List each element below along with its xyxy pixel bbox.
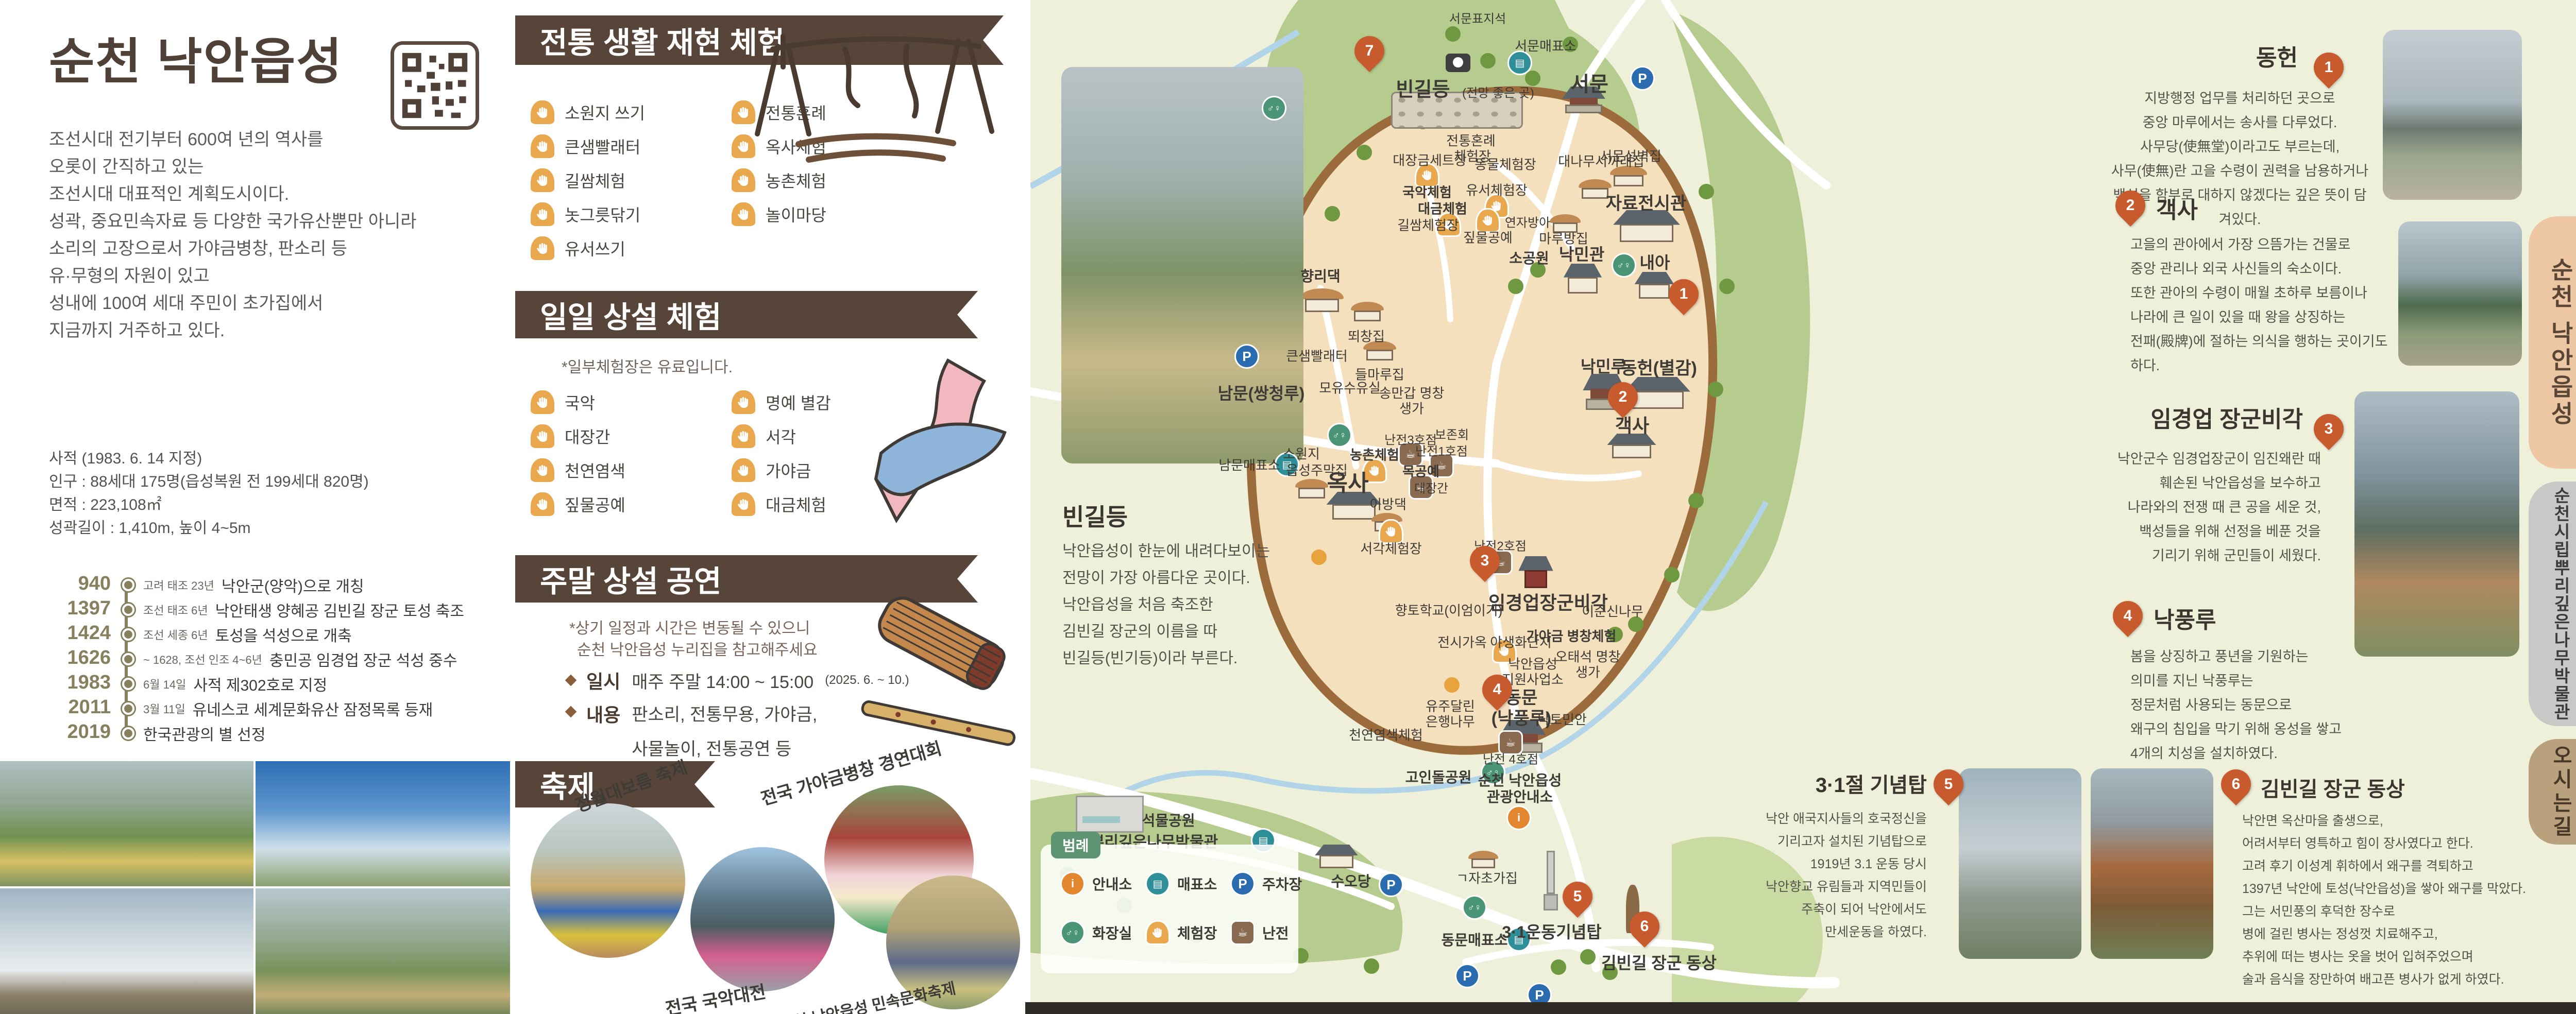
text-line: 낙안 애국지사들의 호국정신을 (1695, 807, 1927, 830)
building-shrine (1521, 556, 1551, 588)
map-label: 서문표지석 (1449, 9, 1506, 27)
parking-icon: P (1230, 871, 1255, 896)
tree-icon (1364, 958, 1379, 974)
timeline-era: 6월 14일 (143, 676, 186, 692)
roof (1295, 479, 1329, 488)
fabric-illustration (819, 340, 1025, 546)
experience-item-label: 가야금 (766, 458, 811, 482)
map-label: 난전1호점 (1415, 441, 1468, 459)
text-line: 주축이 되어 낙안에서도 (1695, 898, 1927, 921)
building-thatch (1353, 302, 1382, 321)
timeline-event: 충민공 임경업 장군 석성 중수 (269, 648, 457, 671)
map-label: 대나무서까래집 (1558, 151, 1644, 170)
legend-item: P주차장 (1230, 871, 1302, 896)
panel-experience: 전통 생활 재현 체험 소원지 쓰기큰샘빨래터길쌈체험놋그릇닦기유서쓰기 전통혼… (510, 0, 1030, 1014)
experience-item: 놋그릇닦기 (531, 202, 645, 226)
body (1612, 444, 1651, 458)
map-label: 자료전시관 (1606, 190, 1686, 215)
experience-item-label: 놋그릇닦기 (565, 202, 640, 226)
legend-item: ☕난전 (1230, 920, 1289, 945)
building-thatch (1470, 851, 1496, 868)
text-line: 만세운동을 하였다. (1695, 921, 1927, 943)
map-label: 큰샘빨래터 (1286, 346, 1348, 365)
tree-icon (1480, 53, 1496, 68)
body (1298, 488, 1325, 499)
brochure-sheet: 순천 낙안읍성 조선시대 전기부터 600여 년의 역사를오롯이 간직하고 있는… (0, 0, 2576, 1014)
experience-item: 천연염색 (531, 458, 625, 482)
map-label: 이방댁 (1369, 494, 1406, 513)
photo-village-spring (0, 761, 253, 886)
experience-item-label: 짚물공예 (565, 492, 625, 516)
timeline-year: 2019 (62, 721, 111, 743)
map-marker-6: 6 (1623, 905, 1666, 948)
timeline-year: 1983 (62, 672, 111, 694)
text-line: 낙안향교 유림들과 지역민들이 (1695, 875, 1927, 898)
map-label: 석물공원 (1142, 810, 1195, 830)
text-line: 인구 : 88세대 175명(읍성복원 전 199세대 820명) (49, 470, 502, 493)
timeline-dot (122, 628, 134, 641)
building-hanok (1566, 264, 1599, 294)
timeline-era: ~ 1628, 조선 인조 4~6년 (143, 651, 262, 667)
experience-icon (531, 492, 554, 516)
experience-icon (531, 424, 554, 448)
poi-pin-3: 3 (2308, 408, 2350, 450)
timeline-dot (122, 678, 134, 690)
timeline-dot (122, 653, 134, 665)
tab-museum: 순천시립뿌리깊은나무박물관 (2529, 482, 2576, 726)
legend-label: 체험장 (1177, 922, 1217, 943)
text-line: 전패(殿牌)에 절하는 의식을 행하는 곳이기도 하다. (2130, 330, 2398, 378)
roof (1351, 302, 1384, 311)
intro-description: 조선시대 전기부터 600여 년의 역사를오롯이 간직하고 있는조선시대 대표적… (49, 126, 502, 345)
poi-text-gaeksa: 고을의 관아에서 가장 으뜸가는 건물로중앙 관리나 외국 사신들의 숙소이다.… (2130, 233, 2398, 378)
drying-rack-illustration (737, 5, 1015, 175)
timeline-event: 낙안태생 양혜공 김빈길 장군 토성 축조 (215, 598, 464, 621)
poi-text-bigak: 낙안군수 임경업장군이 임진왜란 때훼손된 낙안읍성을 보수하고나라와의 전쟁 … (2061, 447, 2321, 568)
ticket-office-icon: ▤ (1145, 871, 1170, 896)
experience-item-label: 대장간 (565, 424, 610, 448)
restroom-icon: ♂♀ (1327, 423, 1352, 448)
text-line: 사무당(使無堂)이라고도 부르는데, (2110, 135, 2370, 159)
roof (1564, 264, 1602, 278)
tree-icon (1325, 206, 1340, 221)
text-line: 의미를 지닌 낙풍루는 (2130, 669, 2398, 693)
ginkgo-tree-icon (1311, 549, 1327, 565)
experience-item: 유서쓰기 (531, 236, 645, 260)
map-label: 남문매표소 (1218, 455, 1280, 474)
text-line: 나라와의 전쟁 때 큰 공을 세운 것, (2061, 495, 2321, 520)
map-label: 고인돌공원 (1405, 766, 1472, 787)
parking-icon: P (1630, 66, 1655, 91)
poi-text-samil: 낙안 애국지사들의 호국정신을기리고자 설치된 기념탑으로1919년 3.1 운… (1695, 807, 1927, 943)
map-label: 뙤창집 (1348, 326, 1385, 346)
experience-icon (732, 424, 755, 448)
map-marker-5: 5 (1556, 875, 1599, 918)
map-label: 난전 4호점 (1483, 749, 1538, 767)
gate-mid (1570, 98, 1598, 106)
body (1620, 224, 1673, 242)
timeline-entry: 한국관광의 별 선정 (143, 721, 265, 746)
tree-icon (1508, 279, 1523, 294)
poi-title-gaeksa: 객사 (2156, 192, 2198, 225)
experience-icon (531, 134, 554, 158)
experience-item-label: 대금체험 (766, 492, 826, 516)
map-marker-2: 2 (1602, 376, 1644, 418)
timeline-year: 1424 (62, 622, 111, 644)
experience-item-label: 국악 (565, 390, 595, 414)
timeline-year: 1626 (62, 647, 111, 669)
tab-directions: 오시는길 (2529, 739, 2576, 845)
timeline-event: 낙안군(양악)으로 개칭 (222, 574, 364, 596)
text-line: 사무(使無)란 고을 수령이 권력을 남용하거나 (2110, 159, 2370, 183)
tower (1547, 851, 1555, 894)
map-label: 보존회 (1435, 425, 1469, 443)
map-marker-3: 3 (1464, 540, 1506, 582)
map-marker-1: 1 (1663, 273, 1705, 315)
map-label: 동헌(별감) (1621, 354, 1697, 380)
map-marker-7: 7 (1348, 30, 1391, 72)
map-label: 3·1운동기념탑 (1502, 919, 1601, 943)
festival-photo-daeboreum (531, 803, 685, 958)
building-thatch (1297, 479, 1326, 499)
body (1354, 311, 1381, 321)
what-label: 내용 (586, 700, 620, 727)
poi-pin-2: 2 (2109, 184, 2151, 227)
experience-item: 소원지 쓰기 (531, 100, 645, 124)
experience-item: 대장간 (531, 424, 625, 448)
map-label: 소공원 (1509, 247, 1549, 268)
map-label: 향토학교(이엄이기) (1395, 600, 1503, 620)
poi-text-dongheon: 지방행정 업무를 처리하던 곳으로중앙 마루에서는 송사를 다루었다.사무당(使… (2110, 87, 2370, 232)
festival-photo-gugak-contest (690, 847, 835, 991)
festival-label-3: 전국 국악대전 (663, 977, 768, 1014)
experience-item: 큰샘빨래터 (531, 134, 645, 158)
timeline-dot (122, 604, 134, 616)
map-panel: 빈길등 낙안읍성이 한눈에 내려다보이는전망이 가장 아름다운 곳이다.낙안읍성… (1030, 0, 2576, 1014)
map-label: 가야금 병창체험 (1527, 626, 1617, 645)
map-label: 유서체험장 (1466, 180, 1528, 199)
text-line: 사적 (1983. 6. 14 지정) (49, 447, 502, 470)
tree-icon (1699, 184, 1714, 199)
poi-title-dongheon: 동헌 (2112, 39, 2298, 72)
experience-item-label: 유서쓰기 (565, 236, 625, 260)
timeline-era: 고려 태조 23년 (143, 577, 214, 593)
poi-pin-4: 4 (2107, 595, 2149, 637)
photo-village-view (256, 888, 510, 1014)
map-label: 연자방아 (1505, 213, 1550, 231)
photo-bigak (2354, 391, 2519, 657)
map-legend: i안내소▤매표소P주차장♂♀화장실체험장☕난전 (1041, 845, 1298, 973)
map-label: 김빈길 장군 동상 (1601, 950, 1717, 974)
experience-item: 국악 (531, 390, 625, 414)
body (1471, 858, 1495, 868)
text-line: 전망이 가장 아름다운 곳이다. (1062, 565, 1270, 592)
poi-title-bigak: 임경업 장군비각 (2081, 401, 2303, 434)
legend-item: 체험장 (1145, 920, 1217, 945)
gate-base (1565, 105, 1602, 113)
text-line: 지금까지 거주하고 있다. (49, 317, 502, 345)
text-line: 중앙 마루에서는 송사를 다루었다. (2110, 111, 2370, 135)
text-line: 성곽, 중요민속자료 등 다양한 국가유산뿐만 아니라 (49, 208, 502, 235)
map-label: 길쌈체험장 (1397, 215, 1459, 234)
bingildeung-description: 낙안읍성이 한눈에 내려다보이는전망이 가장 아름다운 곳이다.낙안읍성을 처음… (1062, 538, 1270, 672)
text-line: 지방행정 업무를 처리하던 곳으로 (2110, 87, 2370, 111)
body (1305, 299, 1339, 312)
text-line: 술과 음식을 장만하여 배고픈 병사가 없게 하였다. (2242, 968, 2572, 991)
text-line: 추위에 떠는 병사는 옷을 벗어 입혀주었으며 (2242, 946, 2572, 968)
text-line: 4개의 치성을 설치하였다. (2130, 742, 2398, 766)
legend-label: 안내소 (1092, 873, 1132, 894)
text-line: 성곽길이 : 1,410m, 높이 4~5m (49, 517, 502, 540)
poi-title-samil: 3·1절 기념탑 (1726, 768, 1927, 798)
map-label: 목공예 (1402, 461, 1439, 480)
timeline-event: 유네스코 세계문화유산 잠정목록 등재 (193, 697, 433, 720)
when-label: 일시 (586, 667, 620, 694)
body (1568, 277, 1598, 294)
map-label: 남문(쌍청루) (1218, 381, 1305, 404)
text-line: 백성들을 위해 선정을 베푼 것을 (2061, 520, 2321, 544)
body (1614, 175, 1643, 186)
text-line: 조선시대 대표적인 계획도시이다. (49, 181, 502, 208)
photo-dongheon (2383, 30, 2522, 200)
section-title-text: 일일 상설 체험 (540, 293, 721, 336)
photo-village-snow (0, 888, 253, 1014)
parking-icon: P (1234, 344, 1259, 369)
text-line: 봄을 상징하고 풍년을 기원하는 (2130, 645, 2398, 669)
legend-label: 화장실 (1092, 922, 1132, 943)
what-value-2: 사물놀이, 전통공연 등 (632, 735, 817, 760)
poi-pin-5: 5 (1927, 763, 1970, 805)
text-line: 고을의 관아에서 가장 으뜸가는 건물로 (2130, 233, 2398, 257)
text-line: 백성을 함부로 대하지 않겠다는 깊은 뜻이 담겨있다. (2110, 183, 2370, 232)
stall-icon: ☕ (1230, 920, 1255, 945)
text-line: 병에 걸린 병사는 정성껏 치료해주고, (2242, 923, 2572, 946)
daily-note: *일부체험장은 유료입니다. (562, 354, 733, 377)
body (1582, 188, 1608, 199)
map-label: 낙민관 (1559, 242, 1604, 265)
roof (1518, 556, 1553, 571)
museum-strip (1082, 816, 1120, 823)
timeline-entry: 조선 태조 6년낙안태생 양혜공 김빈길 장군 토성 축조 (143, 597, 464, 622)
tree-icon (1688, 493, 1704, 508)
text-line: 낙안면 옥산마을 출생으로, (2242, 810, 2572, 832)
body (1366, 350, 1393, 360)
timeline-entry: 6월 14일사적 제302호로 지정 (143, 672, 327, 696)
legend-label: 매표소 (1177, 873, 1217, 894)
legend-label: 주차장 (1262, 873, 1302, 894)
map-label: 내아 (1640, 250, 1670, 273)
tree-icon (1551, 959, 1566, 975)
text-line: 유·무형의 자원이 있고 (49, 263, 502, 290)
timeline-dot (122, 702, 134, 715)
experience-icon (531, 202, 554, 226)
experience-icon (732, 390, 755, 414)
restroom-icon: ♂♀ (1612, 253, 1636, 278)
timeline-era: 3월 11일 (143, 700, 185, 717)
when-value: 매주 주말 14:00 ~ 15:00 (632, 668, 814, 693)
building-museum (1076, 796, 1144, 833)
tab-naganeupseong: 순천 낙안읍성 (2529, 216, 2576, 469)
poi-pin-1: 1 (2308, 46, 2350, 89)
text-line: 낙안군수 임경업장군이 임진왜란 때 (2061, 447, 2321, 471)
map-label: 서문 (1570, 67, 1608, 97)
poi-title-kimbingil: 김빈길 장군 동상 (2261, 772, 2405, 802)
restroom-icon: ♂♀ (1060, 920, 1085, 945)
roof (1635, 272, 1674, 284)
experience-icon (732, 492, 755, 516)
experience-icon (531, 236, 554, 260)
legend-label: 난전 (1262, 922, 1289, 943)
text-line: 성내에 100여 세대 주민이 초가집에서 (49, 290, 502, 317)
restroom-icon: ♂♀ (1262, 96, 1286, 121)
legend-item: i안내소 (1060, 871, 1132, 896)
timeline-entry: ~ 1628, 조선 인조 4~6년충민공 임경업 장군 석성 중수 (143, 647, 457, 672)
experience-icon (732, 202, 755, 226)
building-hanok (1618, 210, 1675, 242)
photo-spot-icon (1446, 54, 1470, 72)
map-label: 서문매표소 (1515, 36, 1577, 55)
page-title: 순천 낙안읍성 (49, 22, 343, 93)
photo-samil-tower (1959, 768, 2081, 959)
parking-icon: P (1379, 872, 1403, 897)
photo-kimbingil-statue (2091, 768, 2213, 959)
map-label: ㄱ자초가집 (1456, 868, 1518, 887)
experience-icon (531, 168, 554, 192)
qr-code (391, 41, 479, 130)
text-line: 훼손된 낙안읍성을 보수하고 (2061, 471, 2321, 495)
map-label: 은행나무 (1426, 712, 1475, 731)
tree-icon (1445, 26, 1461, 42)
timeline-year: 940 (62, 573, 111, 595)
text-line: 어려서부터 영특하고 힘이 장사였다고 한다. (2242, 832, 2572, 855)
experience-icon (1145, 920, 1170, 945)
experience-icon (531, 458, 554, 482)
text-line: 소리의 고장으로서 가야금병창, 판소리 등 (49, 235, 502, 263)
text-line: 낙안읍성이 한눈에 내려다보이는 (1062, 538, 1270, 565)
experience-item: 가야금 (732, 458, 831, 482)
restroom-icon: ♂♀ (1462, 895, 1487, 920)
experience-item: 길쌈체험 (531, 168, 645, 192)
building-hanok (1318, 845, 1355, 868)
bingildeung-title: 빈길등 (1062, 499, 1128, 532)
timeline-era: 조선 세종 6년 (143, 626, 208, 643)
poi-pin-6: 6 (2215, 763, 2257, 805)
legend-title: 범례 (1051, 832, 1100, 858)
map-label: 모유수유실 (1319, 378, 1381, 397)
building-thatch (1581, 179, 1609, 199)
body (1524, 570, 1547, 588)
text-line: 오롯이 간직하고 있는 (49, 153, 502, 181)
timeline-event: 사적 제302호로 지정 (193, 673, 327, 695)
experience-icon (531, 100, 554, 124)
tree-icon (1357, 145, 1372, 160)
text-line: 정문처럼 사용되는 동문으로 (2130, 693, 2398, 717)
history-timeline: 940고려 태조 23년낙안군(양악)으로 개칭1397조선 태조 6년낙안태생… (62, 573, 505, 758)
tower-base (1544, 894, 1558, 910)
text-line: 1919년 3.1 운동 당시 (1695, 853, 1927, 875)
experience-icon (732, 458, 755, 482)
text-line: 기리고자 설치된 기념탑으로 (1695, 830, 1927, 853)
map-label: 대장금세트장 (1393, 150, 1467, 169)
site-stats: 사적 (1983. 6. 14 지정)인구 : 88세대 175명(읍성복원 전… (49, 447, 502, 540)
text-line: 기리기 위해 군민들이 세웠다. (2061, 544, 2321, 568)
text-line: 조선시대 전기부터 600여 년의 역사를 (49, 126, 502, 153)
body (1631, 391, 1683, 409)
text-line: 면적 : 223,108㎡ (49, 493, 502, 517)
timeline-entry: 고려 태조 23년낙안군(양악)으로 개칭 (143, 573, 364, 597)
body (1319, 855, 1353, 868)
timeline-era: 조선 태조 6년 (143, 601, 208, 618)
text-line: 김빈길 장군의 이름을 따 (1062, 618, 1270, 645)
text-line: 왜구의 침입을 막기 위해 옹성을 쌓고 (2130, 717, 2398, 742)
tree-icon (1719, 279, 1735, 294)
tree-icon (1580, 949, 1596, 965)
text-line: 중앙 관리나 외국 사신들의 숙소이다. (2130, 257, 2398, 281)
map-label: 생가 (1399, 399, 1424, 418)
map-label: 서각체험장 (1360, 539, 1422, 558)
ginkgo-tree-icon (1444, 677, 1460, 693)
roof (1550, 214, 1581, 223)
weekend-note-1: *상기 일정과 시간은 변동될 수 있으니 (569, 615, 810, 638)
poi-text-nakpungru: 봄을 상징하고 풍년을 기원하는의미를 지닌 낙풍루는정문처럼 사용되는 동문으… (2130, 645, 2398, 766)
timeline-year: 2011 (62, 696, 111, 718)
daily-list-2: 명예 별감서각가야금대금체험 (732, 390, 831, 526)
bullet-icon (565, 706, 577, 718)
text-line: 고려 후기 이성계 휘하에서 왜구를 격퇴하고 (2242, 855, 2572, 878)
daily-list-1: 국악대장간천연염색짚물공예 (531, 390, 625, 526)
experience-item-label: 놀이마당 (766, 202, 826, 226)
roof (1300, 288, 1344, 299)
bottom-edge-bar (1025, 1002, 2576, 1014)
map-label: (전망 좋은 곳) (1462, 83, 1534, 101)
map-label: 옥사 (1327, 465, 1369, 497)
map-label: 생가 (1575, 662, 1600, 681)
text-line: 1397년 낙안에 토성(낙안읍성)을 쌓아 왜구를 막았다. (2242, 878, 2572, 900)
panel-intro: 순천 낙안읍성 조선시대 전기부터 600여 년의 역사를오롯이 간직하고 있는… (0, 0, 510, 1014)
experience-item-label: 길쌈체험 (565, 168, 625, 192)
reenactment-list-1: 소원지 쓰기큰샘빨래터길쌈체험놋그릇닦기유서쓰기 (531, 100, 645, 270)
building-hanok (1637, 272, 1671, 299)
building-thatch (1303, 288, 1341, 312)
timeline-event: 한국관광의 별 선정 (143, 722, 265, 745)
timeline-event: 토성을 석성으로 개축 (215, 623, 352, 646)
weekend-note-2: 순천 낙안읍성 누리집을 참고해주세요 (577, 637, 818, 660)
text-line: 낙안읍성을 처음 축조한 (1062, 592, 1270, 618)
tree-icon (1708, 382, 1723, 397)
timeline-entry: 3월 11일유네스코 세계문화유산 잠정목록 등재 (143, 696, 433, 721)
what-value-1: 판소리, 전통무용, 가야금, (632, 700, 817, 726)
info-icon: i (1060, 871, 1085, 896)
map-label: 천연염색체험 (1349, 725, 1423, 744)
experience-item-label: 천연염색 (565, 458, 625, 482)
experience-item: 서각 (732, 424, 831, 448)
text-line: 그는 서민풍의 후덕한 장수로 (2242, 900, 2572, 923)
roof (1315, 845, 1358, 855)
experience-item: 놀이마당 (732, 202, 826, 226)
photo-sky-clouds (256, 761, 510, 886)
roof (1579, 179, 1612, 188)
map-label: 향리댁 (1300, 265, 1340, 286)
map-label: 낙민루 (1581, 354, 1626, 377)
map-label: 관광안내소 (1487, 786, 1553, 806)
gayageum-illustration (840, 546, 1030, 762)
text-line: 또한 관아의 수령이 매월 초하루 보름이나 (2130, 281, 2398, 305)
roof (1468, 851, 1498, 859)
photo-gaeksa (2398, 221, 2522, 366)
legend-item: ▤매표소 (1145, 871, 1217, 896)
body (1639, 284, 1670, 299)
experience-item-label: 서각 (766, 424, 796, 448)
